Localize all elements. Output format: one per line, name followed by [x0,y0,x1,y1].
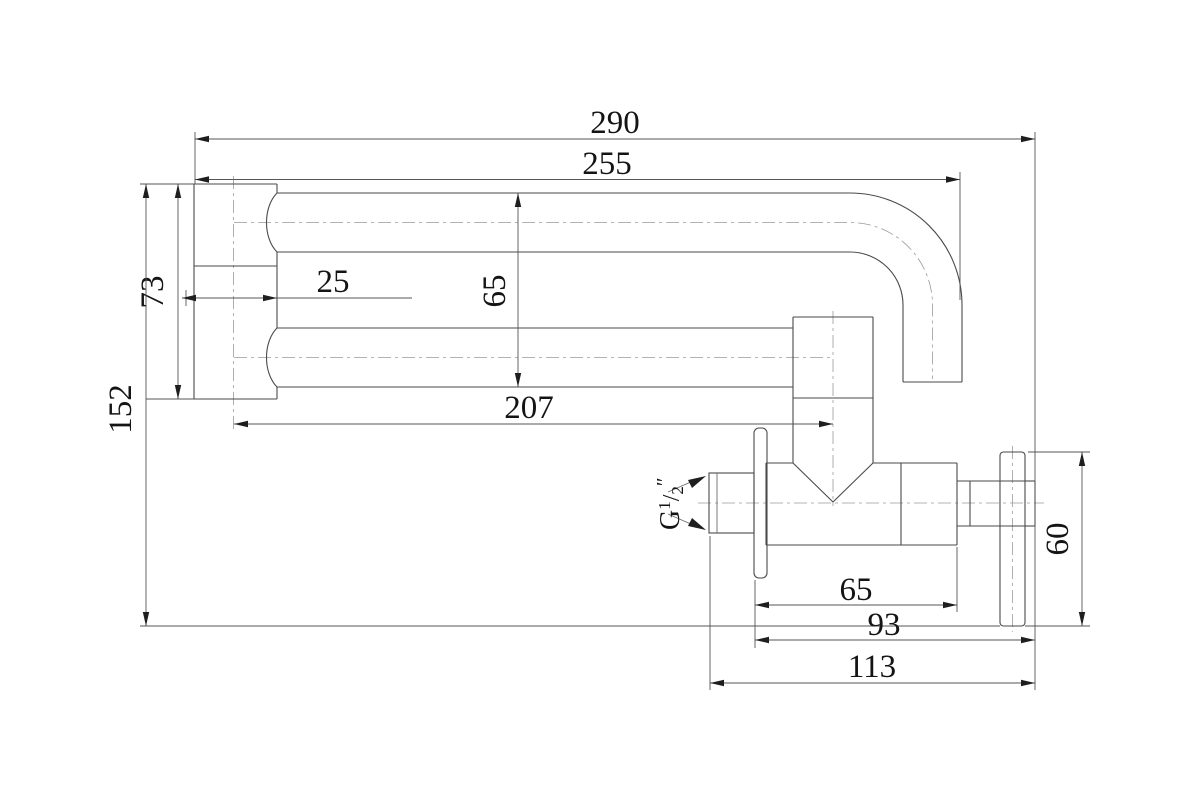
dim-valve-body-length-65: 65 [755,572,957,608]
dim-lower-pipe-reach-207: 207 [234,390,833,426]
thread-size-text: G1/2″ [652,477,687,530]
thread-leader-arrow-bottom [688,518,706,530]
dim-152-label: 152 [103,384,139,434]
valve-stem [957,481,1035,526]
thread-leader-arrow-top [688,476,706,488]
thread-numerator: 1 [655,501,674,510]
dim-113-label: 113 [848,649,896,685]
dim-handle-height-60: 60 [1040,452,1082,626]
dim-73-label: 73 [135,276,171,309]
spout-bend-outer [850,193,962,382]
upper-spout-pipe [277,193,962,382]
dim-93-label: 93 [868,607,901,643]
dim-valve-to-handle-93: 93 [755,607,1035,643]
technical-drawing-page: 290 255 25 65 73 152 207 [0,0,1200,800]
dim-25-label: 25 [317,264,350,300]
dim-spout-reach-255: 255 [195,146,960,182]
dimensions: 290 255 25 65 73 152 207 [103,105,1082,685]
upper-pipe-centerline [234,223,933,380]
valve-body [766,463,957,545]
dim-255-label: 255 [582,146,632,182]
dim-overall-height-152: 152 [103,184,146,626]
thread-size-label: G1/2″ [652,477,687,530]
faucet-dimension-drawing: 290 255 25 65 73 152 207 [0,0,1200,800]
thread-denominator: 2 [668,486,687,495]
dim-65-vertical-label: 65 [477,275,513,308]
dim-290-label: 290 [590,105,640,141]
dim-overall-width-290: 290 [195,105,1035,141]
thread-inch-mark: ″ [652,477,676,486]
dim-65-bottom-label: 65 [840,572,873,608]
dim-wall-inset-25: 25 [182,264,412,300]
wall-mount-block [194,184,277,399]
dim-block-height-73: 73 [135,184,178,399]
dim-60-label: 60 [1040,523,1076,556]
thread-g: G [655,510,686,530]
centerlines [234,176,1045,632]
dim-207-label: 207 [504,390,554,426]
extension-lines [140,132,1090,690]
dim-valve-total-length-113: 113 [710,649,1035,685]
